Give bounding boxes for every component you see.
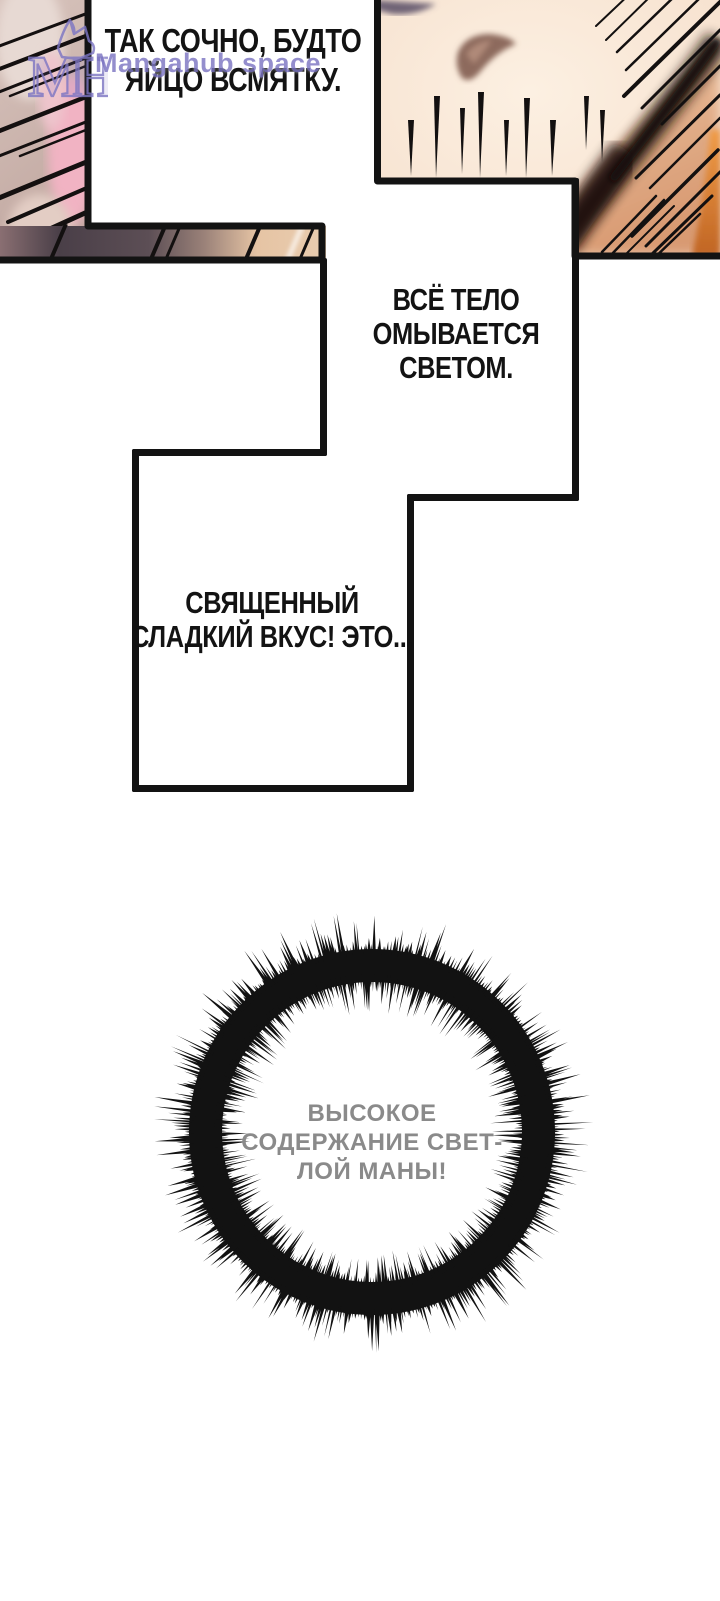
- watermark-site-name: Mangahub space: [95, 48, 321, 79]
- speech-bubble-text-lower: СВЯЩЕННЫЙ СЛАДКИЙ ВКУС! ЭТО...: [108, 586, 436, 654]
- bubble-border-lower-bottom: [132, 785, 414, 792]
- burst-caption-text: ВЫСОКОЕ СОДЕРЖАНИЕ СВЕТ- ЛОЙ МАНЫ!: [172, 1099, 572, 1186]
- speech-bubble-text-middle: ВСЁ ТЕЛО ОМЫВАЕТСЯ СВЕТОМ.: [292, 283, 620, 385]
- top-right-art-panel: [374, 0, 720, 263]
- bubble-border-middle-bottom: [407, 494, 579, 501]
- webtoon-page: ТАК СОЧНО, БУДТО ЯЙЦО ВСМЯТКУ. ВСЁ ТЕЛО …: [0, 0, 720, 1601]
- bubble-border-lower-top: [132, 449, 327, 456]
